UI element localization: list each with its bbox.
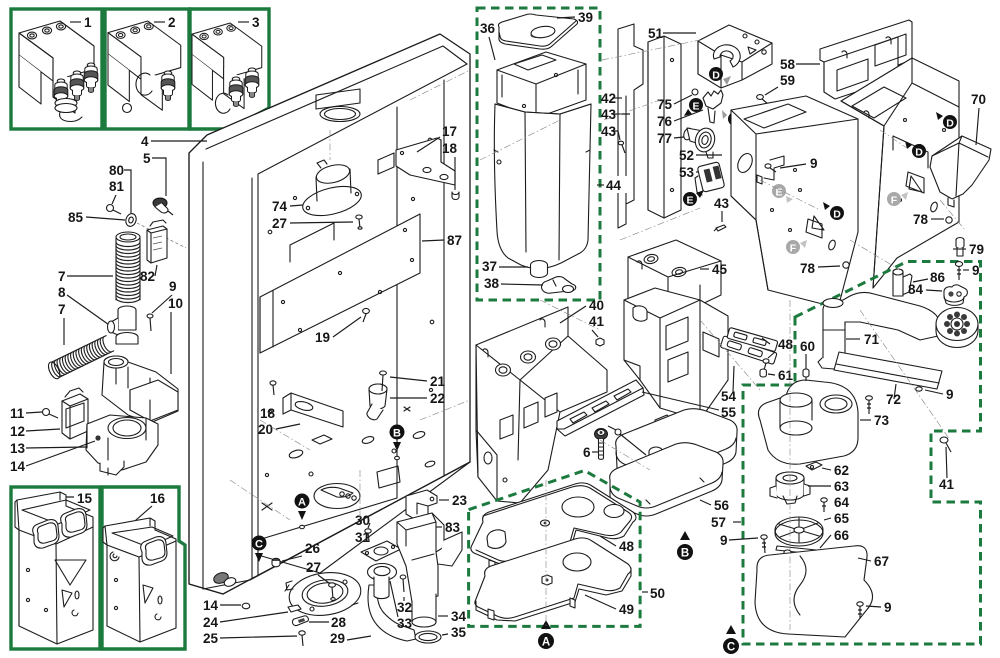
svg-text:75: 75 [657,97,673,112]
svg-text:44: 44 [606,178,622,193]
svg-text:10: 10 [168,296,183,311]
svg-text:60: 60 [800,339,815,354]
svg-text:86: 86 [930,270,946,285]
svg-text:D: D [712,70,720,82]
svg-text:40: 40 [589,298,604,313]
svg-text:30: 30 [355,513,370,528]
svg-text:22: 22 [430,391,445,406]
svg-text:66: 66 [834,528,850,543]
svg-text:45: 45 [712,262,728,277]
svg-text:35: 35 [451,625,467,640]
svg-text:52: 52 [679,148,694,163]
svg-text:14: 14 [10,459,26,474]
svg-text:24: 24 [203,615,219,630]
svg-text:5: 5 [143,151,151,166]
svg-text:57: 57 [711,515,726,530]
svg-text:9: 9 [720,533,728,548]
svg-text:9: 9 [169,279,177,294]
svg-text:73: 73 [874,413,890,428]
svg-text:76: 76 [657,114,673,129]
svg-text:34: 34 [451,609,467,624]
svg-text:87: 87 [447,233,462,248]
svg-text:1: 1 [84,15,92,30]
svg-text:9: 9 [884,600,892,615]
svg-text:53: 53 [679,165,695,180]
svg-text:B: B [393,428,401,440]
svg-text:25: 25 [203,631,219,646]
svg-text:59: 59 [780,73,795,88]
svg-text:9: 9 [810,156,818,171]
svg-text:65: 65 [834,511,850,526]
svg-text:36: 36 [480,21,496,36]
svg-text:A: A [298,497,306,509]
svg-text:50: 50 [650,586,665,601]
svg-text:2: 2 [168,15,176,30]
svg-text:14: 14 [203,598,219,613]
svg-text:83: 83 [445,520,461,535]
svg-text:27: 27 [306,560,321,575]
svg-text:17: 17 [442,124,457,139]
svg-text:21: 21 [430,374,446,389]
svg-text:D: D [946,118,954,130]
svg-text:13: 13 [10,441,26,456]
svg-text:D: D [833,209,841,221]
svg-text:31: 31 [355,530,371,545]
svg-text:33: 33 [397,616,413,631]
svg-text:54: 54 [721,389,737,404]
svg-text:D: D [915,147,923,159]
svg-text:49: 49 [619,602,634,617]
svg-text:62: 62 [834,463,849,478]
svg-text:F: F [790,243,797,255]
svg-text:41: 41 [589,314,605,329]
svg-text:29: 29 [330,631,345,646]
svg-text:19: 19 [315,330,330,345]
svg-text:C: C [727,642,735,654]
svg-text:20: 20 [258,422,273,437]
svg-text:70: 70 [971,92,986,107]
svg-text:56: 56 [714,498,730,513]
svg-text:18: 18 [260,406,276,421]
svg-text:26: 26 [305,541,321,556]
svg-text:16: 16 [150,491,166,506]
svg-text:48: 48 [778,337,794,352]
svg-text:61: 61 [778,368,794,383]
svg-text:4: 4 [141,134,149,149]
svg-text:28: 28 [331,615,347,630]
svg-text:E: E [686,195,693,207]
svg-text:11: 11 [10,406,25,421]
svg-text:72: 72 [886,392,901,407]
svg-text:39: 39 [578,10,593,25]
svg-text:78: 78 [800,261,816,276]
svg-text:82: 82 [140,269,155,284]
svg-text:80: 80 [109,163,124,178]
svg-text:43: 43 [714,196,730,211]
svg-text:78: 78 [913,212,929,227]
svg-text:3: 3 [252,15,260,30]
svg-text:C: C [255,539,263,551]
svg-text:58: 58 [780,57,796,72]
svg-text:41: 41 [939,477,955,492]
svg-text:67: 67 [874,554,889,569]
svg-text:6: 6 [583,445,591,460]
svg-text:79: 79 [969,242,984,257]
svg-text:9: 9 [946,387,954,402]
svg-text:43: 43 [601,124,617,139]
svg-text:84: 84 [908,282,924,297]
svg-text:48: 48 [619,539,635,554]
svg-text:38: 38 [484,276,500,291]
svg-text:23: 23 [452,493,468,508]
svg-text:85: 85 [68,210,84,225]
svg-text:37: 37 [482,259,497,274]
svg-text:32: 32 [397,600,412,615]
svg-text:15: 15 [77,491,93,506]
svg-text:27: 27 [272,216,287,231]
svg-text:9: 9 [972,263,980,278]
svg-text:7: 7 [58,302,66,317]
svg-text:77: 77 [657,131,672,146]
svg-text:E: E [692,101,699,113]
svg-text:12: 12 [10,424,25,439]
svg-text:8: 8 [58,285,66,300]
svg-text:81: 81 [109,179,125,194]
svg-text:64: 64 [834,495,850,510]
svg-text:7: 7 [58,269,66,284]
svg-text:A: A [542,637,550,649]
svg-text:74: 74 [272,199,288,214]
svg-text:B: B [681,548,689,560]
svg-text:F: F [891,195,898,207]
svg-text:18: 18 [442,141,458,156]
svg-text:63: 63 [834,479,850,494]
svg-text:51: 51 [648,26,664,41]
